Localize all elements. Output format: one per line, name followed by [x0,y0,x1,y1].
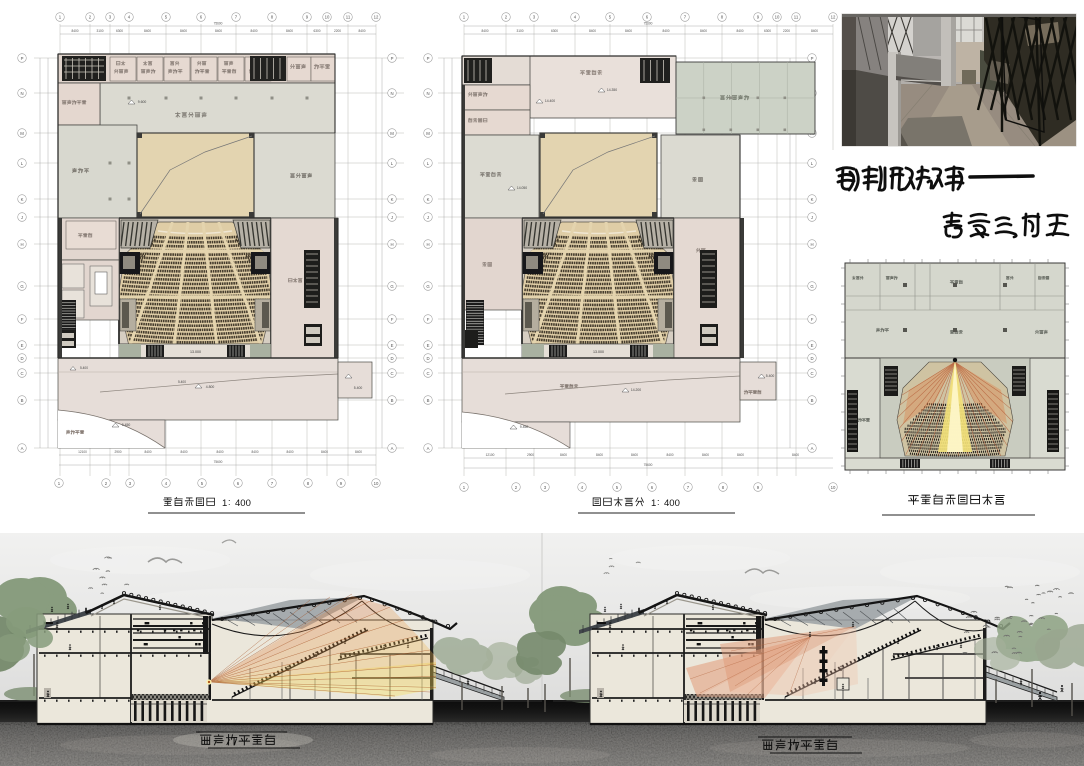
svg-text:8400: 8400 [596,453,603,457]
svg-text:A: A [391,446,394,451]
svg-text:H: H [20,242,23,247]
svg-text:75600: 75600 [214,460,223,464]
svg-text:N: N [426,91,429,96]
svg-text:A: A [811,446,814,451]
svg-text:10: 10 [374,481,379,486]
svg-text:8400: 8400 [737,453,744,457]
svg-text:12100: 12100 [78,450,87,454]
svg-text:E: E [811,343,814,348]
svg-text:8400: 8400 [736,29,743,33]
svg-text:2200: 2200 [783,29,790,33]
svg-text:P: P [21,56,24,61]
svg-text:8400: 8400 [666,453,673,457]
svg-text:14.200: 14.200 [631,388,641,392]
svg-text:M: M [426,131,430,136]
svg-text:14.350: 14.350 [607,88,617,92]
svg-text:8400: 8400 [250,29,257,33]
svg-text:E: E [391,343,394,348]
svg-text:8400: 8400 [286,450,293,454]
svg-text:B: B [391,398,394,403]
svg-text:E: E [21,343,24,348]
svg-text:K: K [427,197,430,202]
svg-text:8400: 8400 [180,450,187,454]
svg-text:8400: 8400 [321,450,328,454]
svg-text:D: D [20,356,23,361]
svg-text:3100: 3100 [96,29,103,33]
svg-text:J: J [391,215,393,220]
svg-text:12: 12 [374,15,379,20]
svg-text:C: C [810,371,813,376]
svg-text:3100: 3100 [516,29,523,33]
svg-text:2900: 2900 [527,453,534,457]
svg-text:K: K [391,197,394,202]
svg-text:6300: 6300 [551,29,558,33]
svg-text:8400: 8400 [631,453,638,457]
svg-text:2200: 2200 [334,29,341,33]
svg-text:B: B [21,398,24,403]
svg-text:8400: 8400 [662,29,669,33]
svg-text:8400: 8400 [180,29,187,33]
svg-text:6300: 6300 [313,29,320,33]
svg-text:F: F [427,317,430,322]
svg-text:400: 400 [664,498,680,509]
svg-text:14.400: 14.400 [545,99,555,103]
svg-text:8400: 8400 [144,29,151,33]
svg-text:10: 10 [775,15,780,20]
svg-text:8400: 8400 [216,450,223,454]
svg-text:B: B [811,398,814,403]
svg-text:K: K [811,197,814,202]
svg-text:M: M [390,131,394,136]
svg-text:F: F [21,317,24,322]
svg-text:9.450: 9.450 [520,425,529,429]
svg-text:C: C [390,371,393,376]
svg-text:B: B [427,398,430,403]
svg-text:J: J [811,215,813,220]
svg-text:8400: 8400 [355,450,362,454]
svg-text:9.450: 9.450 [122,423,131,427]
svg-text:400: 400 [235,498,251,509]
svg-text:11: 11 [346,15,351,20]
svg-text:8400: 8400 [215,29,222,33]
svg-text:9.600: 9.600 [138,100,147,104]
svg-text:8400: 8400 [286,29,293,33]
svg-text:D: D [810,356,813,361]
svg-text:13.000: 13.000 [190,350,201,354]
svg-text:2900: 2900 [114,450,121,454]
svg-text:8400: 8400 [811,29,818,33]
svg-text:P: P [427,56,430,61]
svg-text:4.800: 4.800 [206,385,215,389]
svg-text:14.050: 14.050 [517,186,527,190]
svg-text:A: A [21,446,24,451]
svg-text:D: D [390,356,393,361]
svg-text:8400: 8400 [251,450,258,454]
svg-text:A: A [427,446,430,451]
svg-text:N: N [390,91,393,96]
svg-text:10: 10 [325,15,330,20]
svg-text:8400: 8400 [358,29,365,33]
svg-text:K: K [21,197,24,202]
svg-text:75600: 75600 [214,22,223,26]
svg-text:8400: 8400 [481,29,488,33]
svg-text:6300: 6300 [116,29,123,33]
svg-text:H: H [390,242,393,247]
svg-text:N: N [20,91,23,96]
svg-text:H: H [810,242,813,247]
svg-text:8400: 8400 [144,450,151,454]
svg-text:M: M [20,131,24,136]
svg-text:8400: 8400 [560,453,567,457]
svg-text:5.400: 5.400 [354,386,363,390]
svg-text:1: 1 [222,498,227,509]
svg-text::: : [228,497,231,507]
svg-text:1: 1 [651,498,656,509]
svg-text:5.400: 5.400 [766,374,775,378]
svg-text:75600: 75600 [644,22,653,26]
svg-text:8400: 8400 [625,29,632,33]
svg-text:8400: 8400 [700,29,707,33]
svg-text:12: 12 [831,15,836,20]
svg-text:10: 10 [831,485,836,490]
svg-text:F: F [391,317,394,322]
svg-text::: : [657,497,660,507]
svg-text:P: P [811,56,814,61]
svg-text:12100: 12100 [486,453,495,457]
svg-text:C: C [20,371,23,376]
svg-text:6300: 6300 [764,29,771,33]
svg-text:J: J [427,215,429,220]
svg-text:8400: 8400 [702,453,709,457]
svg-text:F: F [811,317,814,322]
svg-text:E: E [427,343,430,348]
svg-text:13.000: 13.000 [593,350,604,354]
svg-text:J: J [21,215,23,220]
svg-text:11: 11 [794,15,799,20]
svg-text:5.400: 5.400 [80,366,88,370]
svg-text:C: C [426,371,429,376]
svg-text:5.400: 5.400 [178,380,186,384]
svg-text:8400: 8400 [589,29,596,33]
svg-text:75600: 75600 [644,463,653,467]
svg-text:8400: 8400 [71,29,78,33]
svg-text:8400: 8400 [792,453,799,457]
svg-text:D: D [426,356,429,361]
svg-text:P: P [391,56,394,61]
svg-text:H: H [426,242,429,247]
